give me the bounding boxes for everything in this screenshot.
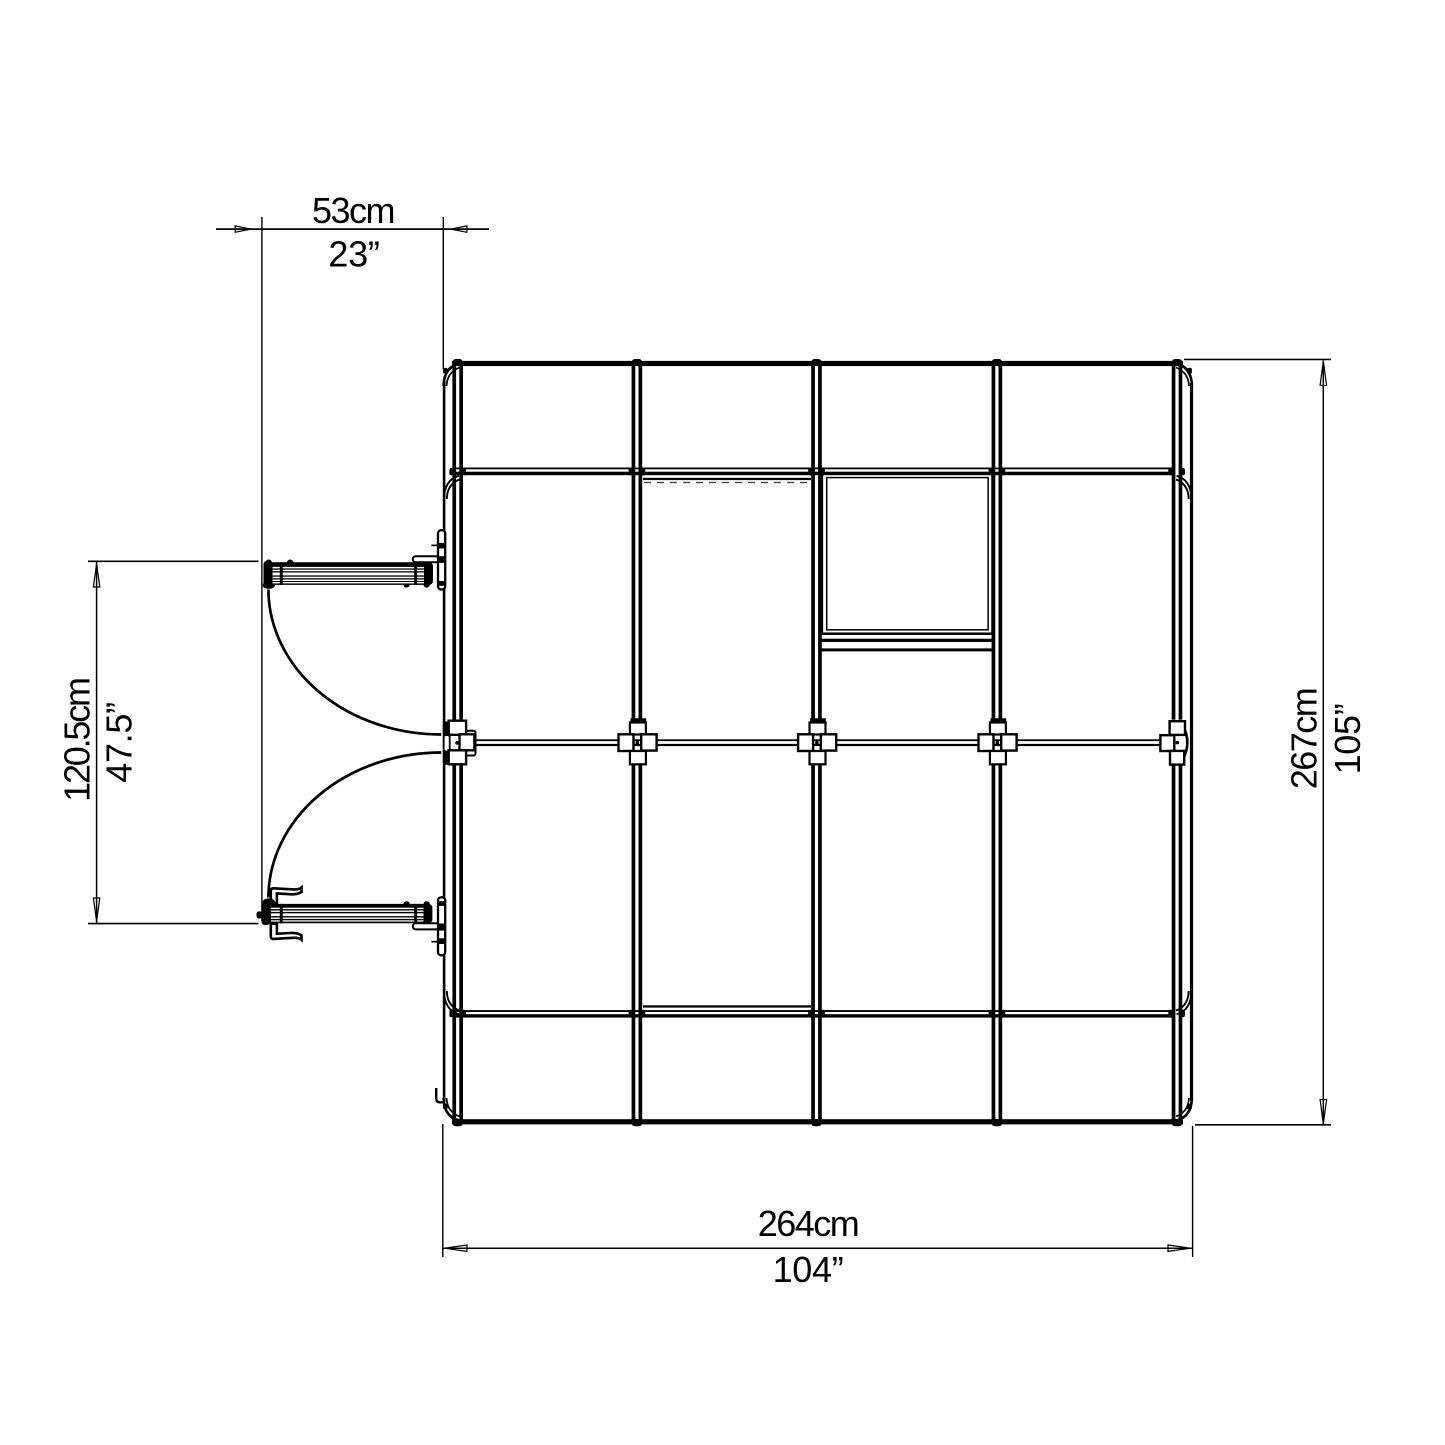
svg-text:23”: 23” bbox=[328, 234, 379, 275]
svg-text:53cm: 53cm bbox=[312, 190, 394, 231]
svg-text:264cm: 264cm bbox=[758, 1203, 859, 1244]
svg-text:267cm: 267cm bbox=[1284, 689, 1325, 790]
svg-text:47.5”: 47.5” bbox=[99, 702, 140, 783]
svg-text:104”: 104” bbox=[773, 1249, 844, 1290]
svg-text:105”: 105” bbox=[1327, 704, 1368, 775]
svg-text:120.5cm: 120.5cm bbox=[57, 679, 98, 802]
